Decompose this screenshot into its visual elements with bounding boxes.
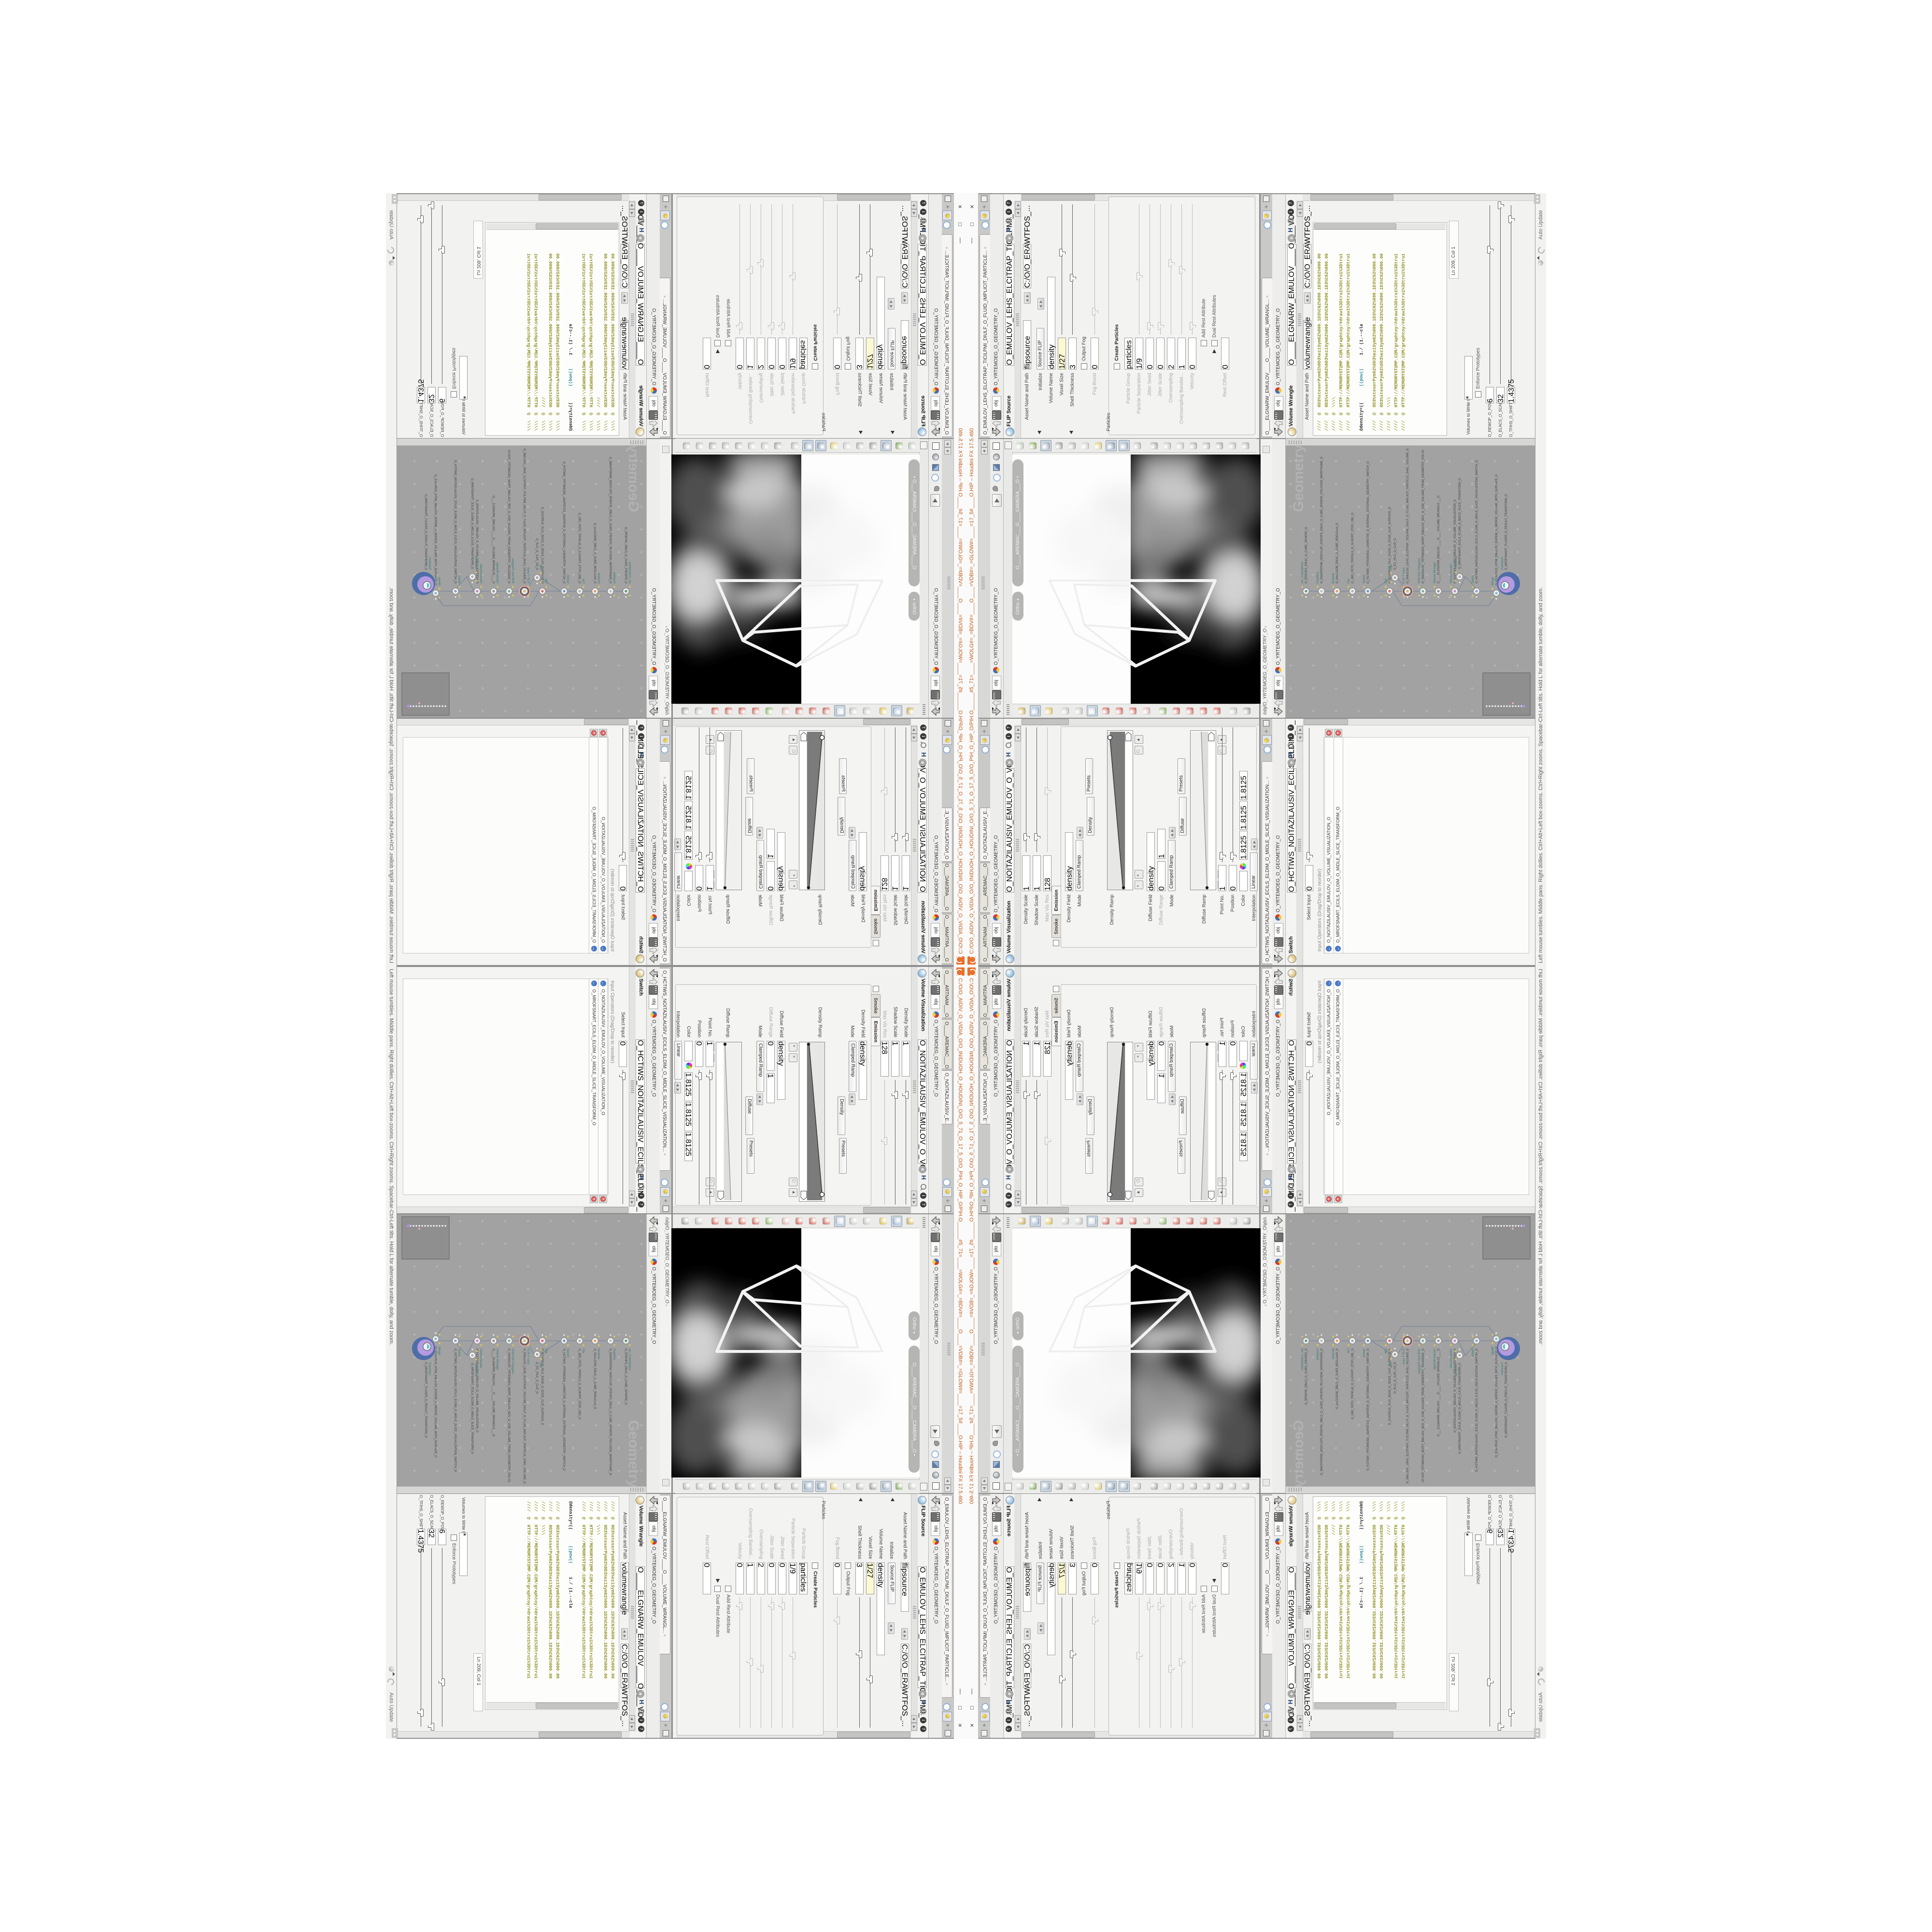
svg-text:Transform: Transform	[428, 1362, 431, 1375]
svg-text:O_EC_PILC_O_CLIP_O: O_EC_PILC_O_CLIP_O	[1394, 1362, 1397, 1394]
svg-text:FLIP Source: FLIP Source	[526, 567, 529, 583]
svg-text:VDB from Polygons: VDB from Polygons	[1418, 1349, 1421, 1374]
svg-text:FLIP Source: FLIP Source	[1403, 1349, 1406, 1365]
svg-text:O_EC_PILC_O_CLIP_O: O_EC_PILC_O_CLIP_O	[535, 538, 538, 570]
svg-text:VolumeVisualiz: VolumeVisualiz	[479, 564, 482, 583]
svg-text:O_MROFSNART_TLUSER_O_RESULT_TR: O_MROFSNART_TLUSER_O_RESULT_TRANSFORM_O	[424, 1362, 427, 1438]
svg-text:Geometry: Geometry	[625, 444, 641, 512]
svg-text:O_NOITAZILAUSIV_EMULOV_O_VOLUM: O_NOITAZILAUSIV_EMULOV_O_VOLUME_VISUALIZ…	[1454, 499, 1457, 583]
svg-text:O_ECAFRUS_PILC_EGDE_O_EDGE_CLI: O_ECAFRUS_PILC_EGDE_O_EDGE_CLIP_SURFACE_…	[540, 507, 543, 583]
svg-text:Switch: Switch	[1363, 1349, 1366, 1357]
svg-text:File: File	[582, 1349, 584, 1353]
svg-text:Switch: Switch	[1472, 1349, 1475, 1357]
svg-text:PolyWire: PolyWire	[1317, 1349, 1320, 1361]
svg-text:VDB from Polygons: VDB from Polygons	[511, 1349, 514, 1374]
svg-text:O____ELGNARW_EMULOV____O____VO: O____ELGNARW_EMULOV____O____VOLUME_WRANG…	[492, 1349, 495, 1436]
svg-text:O_NAELOOB_EBUC_O_CUBE_BOOLEAN_: O_NAELOOB_EBUC_O_CUBE_BOOLEAN_O	[593, 523, 596, 583]
svg-text:PolyWire: PolyWire	[1317, 571, 1320, 583]
svg-text:FLIP Source: FLIP Source	[526, 1349, 529, 1365]
svg-text:O_SNOGILOP_YRTEMOEG_MORF_EMULO: O_SNOGILOP_YRTEMOEG_MORF_EMULOV_BDV_O_VD…	[1422, 1349, 1425, 1482]
svg-text:Clip: Clip	[544, 578, 547, 583]
svg-text:Clip: Clip	[1385, 578, 1388, 583]
svg-text:Merge: Merge	[1492, 577, 1494, 585]
svg-text:O_JBO_PETS_TRIPOLS_O_SLOPIRT_S: O_JBO_PETS_TRIPOLS_O_SLOPIRT_STEP_OBJ_O	[578, 1349, 581, 1420]
svg-text:O_ECAFRUS_PILC_EGDE_O_EDGE_CLI: O_ECAFRUS_PILC_EGDE_O_EDGE_CLIP_SURFACE_…	[1389, 507, 1392, 583]
svg-text:O_EMULOV_LEHS_ELCITRAP_TICILPM: O_EMULOV_LEHS_ELCITRAP_TICILPMI_DIULF_O_…	[1406, 448, 1409, 583]
svg-text:Clip: Clip	[1390, 565, 1393, 570]
svg-text:Switch: Switch	[566, 1349, 569, 1357]
svg-text:Transform: Transform	[1501, 557, 1504, 570]
svg-text:Boolean: Boolean	[597, 1349, 600, 1359]
svg-text:O_EREHPS_EBUC_O_CUBE_SPHERE_O: O_EREHPS_EBUC_O_CUBE_SPHERE_O	[1305, 527, 1308, 583]
svg-text:VolumeVisualiz: VolumeVisualiz	[1450, 564, 1453, 583]
svg-text:VolumeVisualiz: VolumeVisualiz	[479, 1349, 482, 1368]
svg-text:O_EC_PILC_O_CLIP_O: O_EC_PILC_O_CLIP_O	[535, 1362, 538, 1394]
svg-text:O_EMULOV_LEHS_ELCITRAP_TICILPM: O_EMULOV_LEHS_ELCITRAP_TICILPMI_DIULF_O_…	[1406, 1349, 1409, 1484]
svg-text:O_EREHPS_EBUC_O_CUBE_SPHERE_O: O_EREHPS_EBUC_O_CUBE_SPHERE_O	[624, 527, 627, 583]
svg-text:O_NOITAZILAUSIV_EMULOV_O_VOLUM: O_NOITAZILAUSIV_EMULOV_O_VOLUME_VISUALIZ…	[475, 499, 478, 583]
svg-text:Switch: Switch	[457, 575, 460, 583]
svg-text:Geometry: Geometry	[1291, 1420, 1307, 1488]
svg-text:Geometry: Geometry	[1291, 444, 1307, 512]
svg-text:O_SNOGILOP_YRTEMOEG_MORF_EMULO: O_SNOGILOP_YRTEMOEG_MORF_EMULOV_BDV_O_VD…	[507, 1349, 510, 1482]
svg-text:am_CubeSphere: am_CubeSphere	[628, 561, 631, 583]
svg-text:O_EMULOV_LEHS_ELCITRAP_TICILPM: O_EMULOV_LEHS_ELCITRAP_TICILPMI_DIULF_O_…	[523, 1349, 526, 1484]
svg-text:Clip: Clip	[544, 1349, 547, 1354]
svg-text:VDB from Polygons: VDB from Polygons	[511, 558, 514, 583]
svg-text:VDB from Polygons: VDB from Polygons	[1418, 558, 1421, 583]
svg-text:File: File	[1348, 1349, 1350, 1353]
svg-text:O_HCTIWS_NOITAZILAUSIV_ECILS_E: O_HCTIWS_NOITAZILAUSIV_ECILS_ELDIM_O_MID…	[1476, 1349, 1478, 1472]
svg-text:O____ELGNARW_EMULOV____O____VO: O____ELGNARW_EMULOV____O____VOLUME_WRANG…	[492, 496, 495, 583]
svg-text:O_MROFSNART_ECILS_ELDIM_O_MIDL: O_MROFSNART_ECILS_ELDIM_O_MIDLE_SLICE_TR…	[1459, 1363, 1462, 1454]
svg-text:O_ECAFRUS_HTIW_EMULOV_EGREM_O_: O_ECAFRUS_HTIW_EMULOV_EGREM_O_MERGE_VOLU…	[1495, 1347, 1498, 1458]
svg-text:O____ELGNARW_EMULOV____O____VO: O____ELGNARW_EMULOV____O____VOLUME_WRANG…	[1437, 1349, 1440, 1436]
svg-text:Clip: Clip	[539, 1362, 542, 1367]
svg-text:O_ECAFRUS_HTIW_EMULOV_EGREM_O_: O_ECAFRUS_HTIW_EMULOV_EGREM_O_MERGE_VOLU…	[434, 1347, 437, 1458]
svg-text:O_EMARFERIW_NOGYLOP_EREHPS_EBU: O_EMARFERIW_NOGYLOP_EREHPS_EBUC_O_CUBE_S…	[1321, 1349, 1323, 1476]
svg-text:O_HCTIWS_YRTEMOEG_LANRETXE_O_I: O_HCTIWS_YRTEMOEG_LANRETXE_O_INTERNAL_EX…	[1367, 461, 1370, 583]
svg-text:Volume Wrangle: Volume Wrangle	[496, 562, 498, 583]
svg-text:O_NOITAZILAUSIV_EMULOV_O_VOLUM: O_NOITAZILAUSIV_EMULOV_O_VOLUME_VISUALIZ…	[1454, 1349, 1457, 1433]
svg-text:O_SNOGILOP_YRTEMOEG_MORF_EMULO: O_SNOGILOP_YRTEMOEG_MORF_EMULOV_BDV_O_VD…	[507, 450, 510, 583]
svg-text:O_EMARFERIW_NOGYLOP_EREHPS_EBU: O_EMARFERIW_NOGYLOP_EREHPS_EBUC_O_CUBE_S…	[1321, 456, 1323, 583]
svg-text:O_ECAFRUS_PILC_EGDE_O_EDGE_CLI: O_ECAFRUS_PILC_EGDE_O_EDGE_CLIP_SURFACE_…	[1389, 1349, 1392, 1425]
svg-text:O_ECAFRUS_PILC_EGDE_O_EDGE_CLI: O_ECAFRUS_PILC_EGDE_O_EDGE_CLIP_SURFACE_…	[540, 1349, 543, 1425]
svg-text:Clip: Clip	[539, 565, 542, 570]
svg-text:Boolean: Boolean	[1332, 573, 1335, 583]
svg-text:O_NAELOOB_EBUC_O_CUBE_BOOLEAN_: O_NAELOOB_EBUC_O_CUBE_BOOLEAN_O	[1336, 1349, 1339, 1409]
svg-text:O_JBO_PETS_TRIPOLS_O_SLOPIRT_S: O_JBO_PETS_TRIPOLS_O_SLOPIRT_STEP_OBJ_O	[578, 512, 581, 583]
svg-text:Clip: Clip	[1390, 1362, 1393, 1367]
svg-text:O_MROFSNART_ECILS_ELDIM_O_MIDL: O_MROFSNART_ECILS_ELDIM_O_MIDLE_SLICE_TR…	[470, 478, 473, 569]
svg-text:Geometry: Geometry	[625, 1420, 641, 1488]
svg-text:Transform: Transform	[474, 556, 477, 569]
svg-text:Boolean: Boolean	[1332, 1349, 1335, 1359]
svg-text:Merge: Merge	[438, 577, 440, 585]
svg-text:O_MROFSNART_ECILS_ELDIM_O_MIDL: O_MROFSNART_ECILS_ELDIM_O_MIDLE_SLICE_TR…	[470, 1363, 473, 1454]
svg-text:O_SNOGILOP_YRTEMOEG_MORF_EMULO: O_SNOGILOP_YRTEMOEG_MORF_EMULOV_BDV_O_VD…	[1422, 450, 1425, 583]
svg-text:Volume Wrangle: Volume Wrangle	[496, 1349, 498, 1370]
svg-text:am_CubeSphere: am_CubeSphere	[1301, 1349, 1304, 1371]
svg-text:O_NOITAZILAUSIV_EMULOV_O_VOLUM: O_NOITAZILAUSIV_EMULOV_O_VOLUME_VISUALIZ…	[475, 1349, 478, 1433]
svg-text:O_HCTIWS_YRTEMOEG_LANRETXE_O_I: O_HCTIWS_YRTEMOEG_LANRETXE_O_INTERNAL_EX…	[1367, 1349, 1370, 1471]
svg-text:am_CubeSphere: am_CubeSphere	[628, 1349, 631, 1371]
svg-text:Transform: Transform	[428, 557, 431, 570]
svg-text:O_HCTIWS_YRTEMOEG_LANRETXE_O_I: O_HCTIWS_YRTEMOEG_LANRETXE_O_INTERNAL_EX…	[562, 1349, 565, 1471]
svg-text:Merge: Merge	[1492, 1347, 1494, 1355]
svg-text:Boolean: Boolean	[597, 573, 600, 583]
svg-text:Clip: Clip	[1385, 1349, 1388, 1354]
svg-text:File: File	[582, 579, 584, 583]
svg-text:Volume Wrangle: Volume Wrangle	[1434, 562, 1436, 583]
svg-text:O_JBO_PETS_TRIPOLS_O_SLOPIRT_S: O_JBO_PETS_TRIPOLS_O_SLOPIRT_STEP_OBJ_O	[1351, 1349, 1354, 1420]
svg-text:PolyWire: PolyWire	[612, 1349, 615, 1361]
svg-text:Transform: Transform	[474, 1363, 477, 1376]
svg-text:Switch: Switch	[457, 1349, 460, 1357]
svg-text:O_HCTIWS_NOITAZILAUSIV_ECILS_E: O_HCTIWS_NOITAZILAUSIV_ECILS_ELDIM_O_MID…	[1476, 460, 1478, 583]
svg-text:O_EREHPS_EBUC_O_CUBE_SPHERE_O: O_EREHPS_EBUC_O_CUBE_SPHERE_O	[624, 1349, 627, 1405]
svg-text:Transform: Transform	[1455, 1363, 1458, 1376]
svg-text:Merge: Merge	[438, 1347, 440, 1355]
svg-text:O_HCTIWS_NOITAZILAUSIV_ECILS_E: O_HCTIWS_NOITAZILAUSIV_ECILS_ELDIM_O_MID…	[454, 460, 456, 583]
svg-text:O_NAELOOB_EBUC_O_CUBE_BOOLEAN_: O_NAELOOB_EBUC_O_CUBE_BOOLEAN_O	[593, 1349, 596, 1409]
svg-text:File: File	[1348, 579, 1350, 583]
svg-text:O_EC_PILC_O_CLIP_O: O_EC_PILC_O_CLIP_O	[1394, 538, 1397, 570]
svg-text:O_ECAFRUS_HTIW_EMULOV_EGREM_O_: O_ECAFRUS_HTIW_EMULOV_EGREM_O_MERGE_VOLU…	[1495, 474, 1498, 585]
svg-text:Switch: Switch	[566, 575, 569, 583]
svg-text:Switch: Switch	[1472, 575, 1475, 583]
svg-text:O_MROFSNART_TLUSER_O_RESULT_TR: O_MROFSNART_TLUSER_O_RESULT_TRANSFORM_O	[424, 494, 427, 570]
svg-text:O____ELGNARW_EMULOV____O____VO: O____ELGNARW_EMULOV____O____VOLUME_WRANG…	[1437, 496, 1440, 583]
svg-text:VolumeVisualiz: VolumeVisualiz	[1450, 1349, 1453, 1368]
svg-text:O_MROFSNART_ECILS_ELDIM_O_MIDL: O_MROFSNART_ECILS_ELDIM_O_MIDLE_SLICE_TR…	[1459, 478, 1462, 569]
svg-text:FLIP Source: FLIP Source	[1403, 567, 1406, 583]
svg-text:O_EMARFERIW_NOGYLOP_EREHPS_EBU: O_EMARFERIW_NOGYLOP_EREHPS_EBUC_O_CUBE_S…	[609, 1349, 611, 1476]
svg-text:PolyWire: PolyWire	[612, 571, 615, 583]
svg-text:O_MROFSNART_TLUSER_O_RESULT_TR: O_MROFSNART_TLUSER_O_RESULT_TRANSFORM_O	[1505, 1362, 1508, 1438]
svg-text:O_ECAFRUS_HTIW_EMULOV_EGREM_O_: O_ECAFRUS_HTIW_EMULOV_EGREM_O_MERGE_VOLU…	[434, 474, 437, 585]
svg-text:O_HCTIWS_YRTEMOEG_LANRETXE_O_I: O_HCTIWS_YRTEMOEG_LANRETXE_O_INTERNAL_EX…	[562, 461, 565, 583]
svg-text:Transform: Transform	[1455, 556, 1458, 569]
svg-text:Switch: Switch	[1363, 575, 1366, 583]
svg-text:O_NAELOOB_EBUC_O_CUBE_BOOLEAN_: O_NAELOOB_EBUC_O_CUBE_BOOLEAN_O	[1336, 523, 1339, 583]
svg-text:Volume Wrangle: Volume Wrangle	[1434, 1349, 1436, 1370]
svg-text:Transform: Transform	[1501, 1362, 1504, 1375]
svg-text:O_EMULOV_LEHS_ELCITRAP_TICILPM: O_EMULOV_LEHS_ELCITRAP_TICILPMI_DIULF_O_…	[523, 448, 526, 583]
svg-text:O_EMARFERIW_NOGYLOP_EREHPS_EBU: O_EMARFERIW_NOGYLOP_EREHPS_EBUC_O_CUBE_S…	[609, 456, 611, 583]
svg-text:O_HCTIWS_NOITAZILAUSIV_ECILS_E: O_HCTIWS_NOITAZILAUSIV_ECILS_ELDIM_O_MID…	[454, 1349, 456, 1472]
svg-text:O_JBO_PETS_TRIPOLS_O_SLOPIRT_S: O_JBO_PETS_TRIPOLS_O_SLOPIRT_STEP_OBJ_O	[1351, 512, 1354, 583]
svg-text:am_CubeSphere: am_CubeSphere	[1301, 561, 1304, 583]
svg-text:O_MROFSNART_TLUSER_O_RESULT_TR: O_MROFSNART_TLUSER_O_RESULT_TRANSFORM_O	[1505, 494, 1508, 570]
svg-text:O_EREHPS_EBUC_O_CUBE_SPHERE_O: O_EREHPS_EBUC_O_CUBE_SPHERE_O	[1305, 1349, 1308, 1405]
